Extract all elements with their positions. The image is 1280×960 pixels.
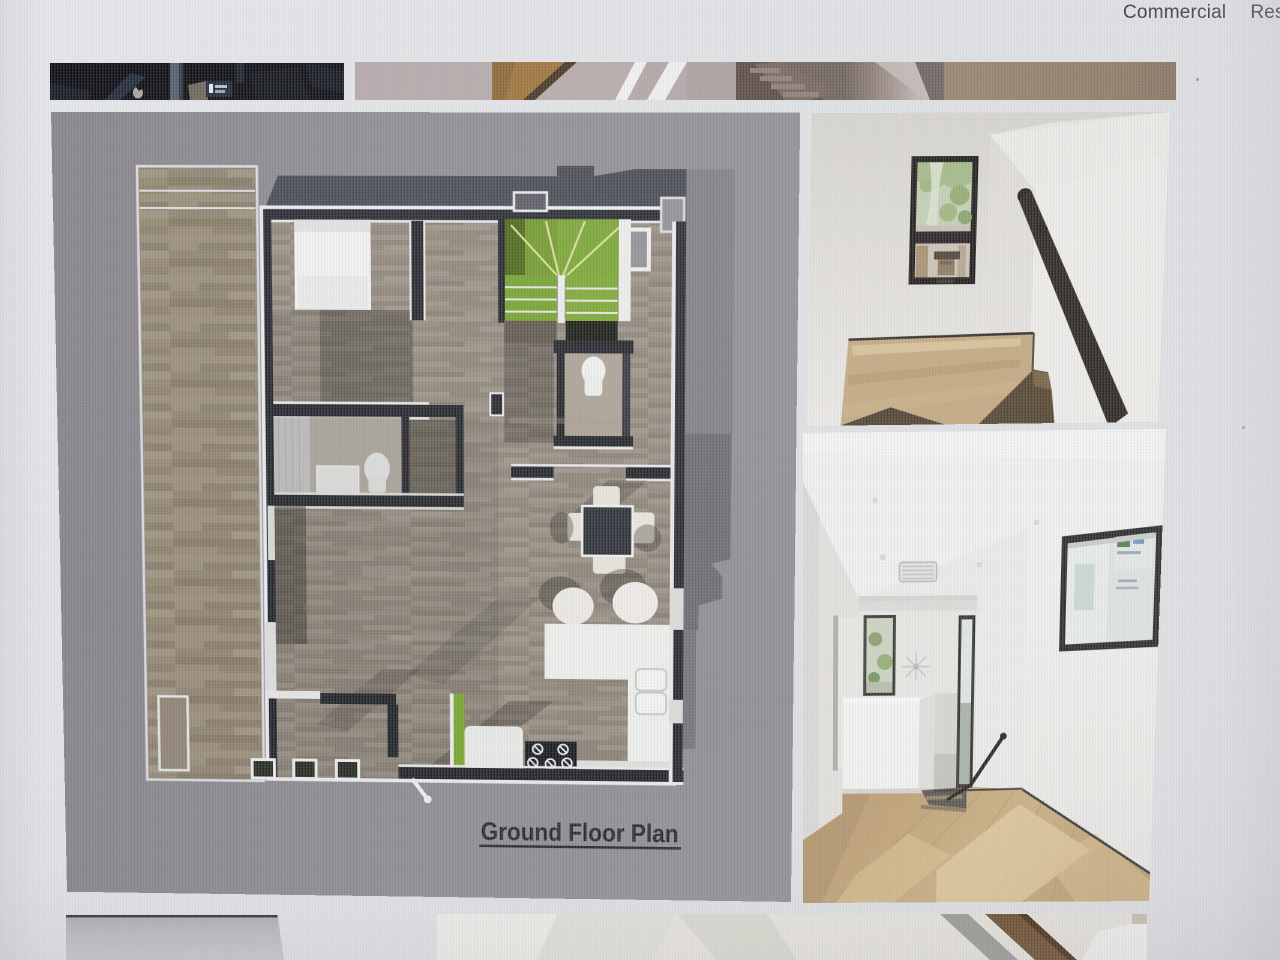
svg-text:Ground Floor Plan: Ground Floor Plan <box>481 819 679 849</box>
